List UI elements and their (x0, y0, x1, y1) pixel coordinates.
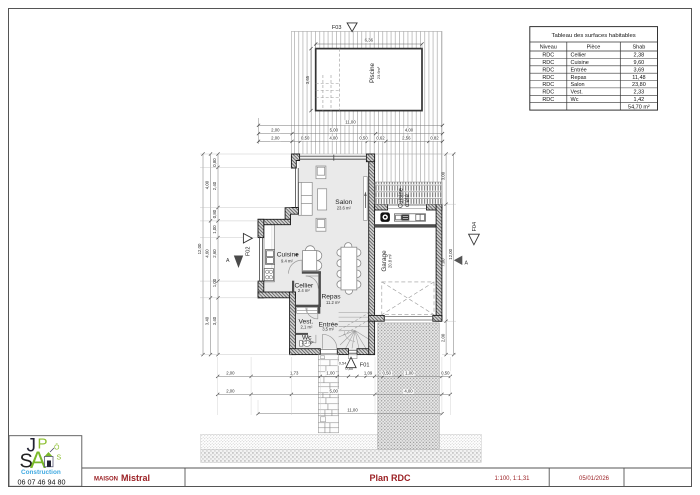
svg-text:4,00: 4,00 (205, 180, 210, 189)
svg-text:0,50: 0,50 (359, 136, 368, 141)
svg-text:12,00: 12,00 (448, 248, 453, 259)
svg-text:23.6m²: 23.6m² (376, 66, 381, 79)
svg-text:4,00: 4,00 (329, 136, 338, 141)
svg-text:20.8 m²: 20.8 m² (388, 253, 393, 268)
svg-text:4,00: 4,00 (405, 128, 414, 133)
svg-text:3,69: 3,69 (634, 67, 645, 73)
svg-text:1,2 m²: 1,2 m² (302, 340, 314, 345)
svg-text:05/01/2026: 05/01/2026 (579, 476, 610, 482)
svg-text:Niveau: Niveau (540, 45, 557, 51)
svg-text:2.4 m²: 2.4 m² (298, 288, 310, 293)
svg-text:4,60: 4,60 (205, 249, 210, 258)
svg-text:RDC: RDC (542, 53, 554, 59)
svg-text:2,38: 2,38 (634, 53, 645, 59)
svg-text:06 07 46 94 80: 06 07 46 94 80 (18, 477, 66, 486)
svg-text:Cuisine: Cuisine (277, 252, 299, 259)
svg-text:3,40: 3,40 (205, 316, 210, 325)
svg-text:A: A (465, 261, 469, 267)
svg-text:2,1 m²: 2,1 m² (301, 324, 313, 329)
svg-text:23.6 m²: 23.6 m² (337, 206, 352, 211)
svg-text:5,00: 5,00 (330, 388, 339, 393)
svg-text:RDC: RDC (542, 97, 554, 103)
svg-text:Construction: Construction (21, 469, 61, 476)
svg-text:F03: F03 (332, 25, 342, 31)
svg-text:RDC: RDC (542, 67, 554, 73)
svg-text:Salon: Salon (571, 82, 585, 88)
svg-text:5,00: 5,00 (330, 128, 339, 133)
svg-text:1:100, 1:1,31: 1:100, 1:1,31 (494, 476, 530, 482)
svg-text:2,00: 2,00 (226, 388, 235, 393)
svg-text:Cellier: Cellier (571, 53, 587, 59)
svg-text:2,00: 2,00 (271, 136, 280, 141)
svg-text:Plan RDC: Plan RDC (369, 473, 411, 483)
svg-text:Shab: Shab (632, 45, 645, 51)
svg-text:23,80: 23,80 (632, 82, 646, 88)
svg-text:9.4 m²: 9.4 m² (281, 259, 293, 264)
svg-text:0,50: 0,50 (301, 136, 310, 141)
svg-text:d'été: d'été (405, 193, 411, 206)
svg-text:1,09: 1,09 (364, 370, 373, 375)
svg-text:Entrée: Entrée (571, 67, 587, 73)
svg-text:12,00: 12,00 (197, 243, 202, 254)
svg-text:F04: F04 (472, 222, 478, 232)
svg-text:Ô: Ô (54, 443, 60, 452)
svg-text:RDC: RDC (542, 75, 554, 81)
svg-text:0,80: 0,80 (212, 158, 217, 167)
svg-text:11,00: 11,00 (347, 408, 358, 413)
svg-text:1,00: 1,00 (212, 278, 217, 287)
svg-text:3,65: 3,65 (305, 75, 310, 84)
svg-text:2,60: 2,60 (212, 249, 217, 258)
svg-text:RDC: RDC (542, 90, 554, 96)
svg-text:0,50: 0,50 (441, 370, 450, 375)
svg-text:1,00: 1,00 (405, 370, 414, 375)
svg-text:3,40: 3,40 (212, 316, 217, 325)
svg-text:Cuisine: Cuisine (399, 187, 405, 208)
svg-text:0,50: 0,50 (383, 370, 392, 375)
svg-text:2,00: 2,00 (441, 333, 446, 342)
svg-text:2,00: 2,00 (226, 370, 235, 375)
svg-text:0,62: 0,62 (376, 136, 385, 141)
svg-text:2,00: 2,00 (271, 128, 280, 133)
svg-text:Vest.: Vest. (571, 90, 584, 96)
svg-text:F02: F02 (246, 247, 252, 257)
svg-text:Repas: Repas (571, 75, 587, 81)
svg-text:RDC: RDC (542, 82, 554, 88)
svg-text:Mistral: Mistral (121, 473, 150, 483)
svg-text:9,60: 9,60 (634, 60, 645, 66)
svg-text:54,70 m²: 54,70 m² (628, 104, 650, 110)
svg-text:2,56: 2,56 (402, 136, 411, 141)
svg-text:3,00: 3,00 (441, 171, 446, 180)
svg-text:4,00: 4,00 (404, 388, 413, 393)
svg-text:1,42: 1,42 (634, 97, 645, 103)
svg-text:3,5 m²: 3,5 m² (322, 327, 334, 332)
svg-text:1,00: 1,00 (326, 370, 335, 375)
svg-text:0,54: 0,54 (339, 361, 347, 366)
svg-text:11,48: 11,48 (632, 75, 645, 81)
svg-text:1,73: 1,73 (290, 370, 299, 375)
svg-text:Cuisine: Cuisine (571, 60, 589, 66)
svg-text:2,33: 2,33 (634, 90, 645, 96)
svg-text:MAISON: MAISON (94, 477, 118, 483)
svg-text:Pièce: Pièce (587, 45, 601, 51)
svg-text:0,80: 0,80 (212, 209, 217, 218)
svg-text:RDC: RDC (542, 60, 554, 66)
svg-text:Wc: Wc (571, 97, 579, 103)
svg-text:7,00: 7,00 (441, 258, 446, 267)
svg-text:2,40: 2,40 (212, 181, 217, 190)
svg-text:Tableau des surfaces habitable: Tableau des surfaces habitables (552, 33, 636, 39)
svg-text:11,00: 11,00 (345, 120, 356, 125)
svg-text:F01: F01 (360, 363, 370, 369)
svg-text:1,00: 1,00 (212, 225, 217, 234)
svg-text:0,82: 0,82 (430, 136, 439, 141)
svg-text:6,36: 6,36 (365, 38, 374, 43)
svg-text:A: A (226, 258, 230, 264)
svg-text:S: S (57, 455, 62, 462)
svg-text:11.2 m²: 11.2 m² (326, 300, 340, 305)
